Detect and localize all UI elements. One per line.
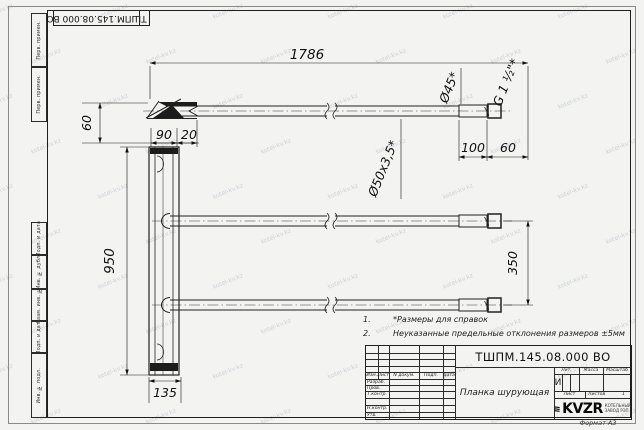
company-name-line2: ЗАВОД РЭП <box>605 409 631 414</box>
sheet-label: Лист <box>554 391 585 398</box>
kvzr-coil-icon <box>554 402 560 416</box>
lit-value: И <box>554 374 562 391</box>
side-cell-label: Перв. примен. <box>37 75 42 114</box>
note-number: 1. <box>363 315 371 324</box>
row-utv: Утв. <box>367 412 389 419</box>
side-cell-inv-dubl: Инв. № дубл. <box>31 255 47 289</box>
corner-stamp: ТШПМ.145.08.000 ВО <box>53 10 150 26</box>
side-cell-podp-data-1: Подп. и дата <box>31 222 47 255</box>
side-cell-label: Инв. № подл. <box>37 368 42 404</box>
side-cell-perv-primen-1: Перв. примен. <box>31 13 47 67</box>
title-doc-number: ТШПМ.145.08.000 ВО <box>455 346 631 367</box>
side-cell-label: Подп. и дата <box>37 221 42 256</box>
scale-label: Масштаб <box>603 367 631 374</box>
side-cell-vzam-inv: Взам. инв. № <box>31 289 47 321</box>
lit-label: Лит. <box>554 367 579 374</box>
note-1: 1. *Размеры для справок <box>363 315 623 326</box>
col-list: Лист <box>378 372 390 379</box>
col-data: Дата <box>443 372 455 379</box>
title-block: Изм. Лист N докум. Подп. Дата Разраб. Пр… <box>365 345 632 420</box>
company-name: КОТЕЛЬНЫЙ ЗАВОД РЭП <box>605 404 631 414</box>
col-dokum: N докум. <box>389 372 419 379</box>
kvzr-logo: KVZR <box>562 401 603 417</box>
col-podp: Подп. <box>419 372 443 379</box>
title-part-name: Планка шурующая <box>455 367 554 419</box>
format-label: Формат А3 <box>558 419 638 427</box>
col-izm: Изм. <box>366 372 378 379</box>
side-cell-label: Инв. № дубл. <box>37 254 42 289</box>
mass-label: Масса <box>579 367 603 374</box>
row-nkontr: Н.контр. <box>367 405 389 412</box>
note-2: 2. Неуказанные предельные отклонения раз… <box>363 329 623 340</box>
note-number: 2. <box>363 329 371 338</box>
note-text: *Размеры для справок <box>393 315 488 324</box>
note-text: Неуказанные предельные отклонения размер… <box>393 329 625 338</box>
sheets-value: 1 <box>622 391 630 398</box>
row-tkontr: Т.контр. <box>367 391 389 398</box>
corner-stamp-divider <box>139 11 140 25</box>
side-cell-perv-primen-2: Перв. примен. <box>31 67 47 122</box>
sheets-label: Листов <box>588 391 614 398</box>
company-cell: KVZR КОТЕЛЬНЫЙ ЗАВОД РЭП <box>554 398 631 419</box>
side-cell-inv-podl: Инв. № подл. <box>31 353 47 418</box>
side-cell-label: Перв. примен. <box>37 21 42 60</box>
side-cell-podp-data-2: Подп. и дата <box>31 321 47 353</box>
side-cell-label: Взам. инв. № <box>37 288 42 323</box>
side-cell-label: Подп. и дата <box>37 319 42 354</box>
corner-stamp-number: ТШПМ.145.08.000 ВО <box>54 11 139 25</box>
